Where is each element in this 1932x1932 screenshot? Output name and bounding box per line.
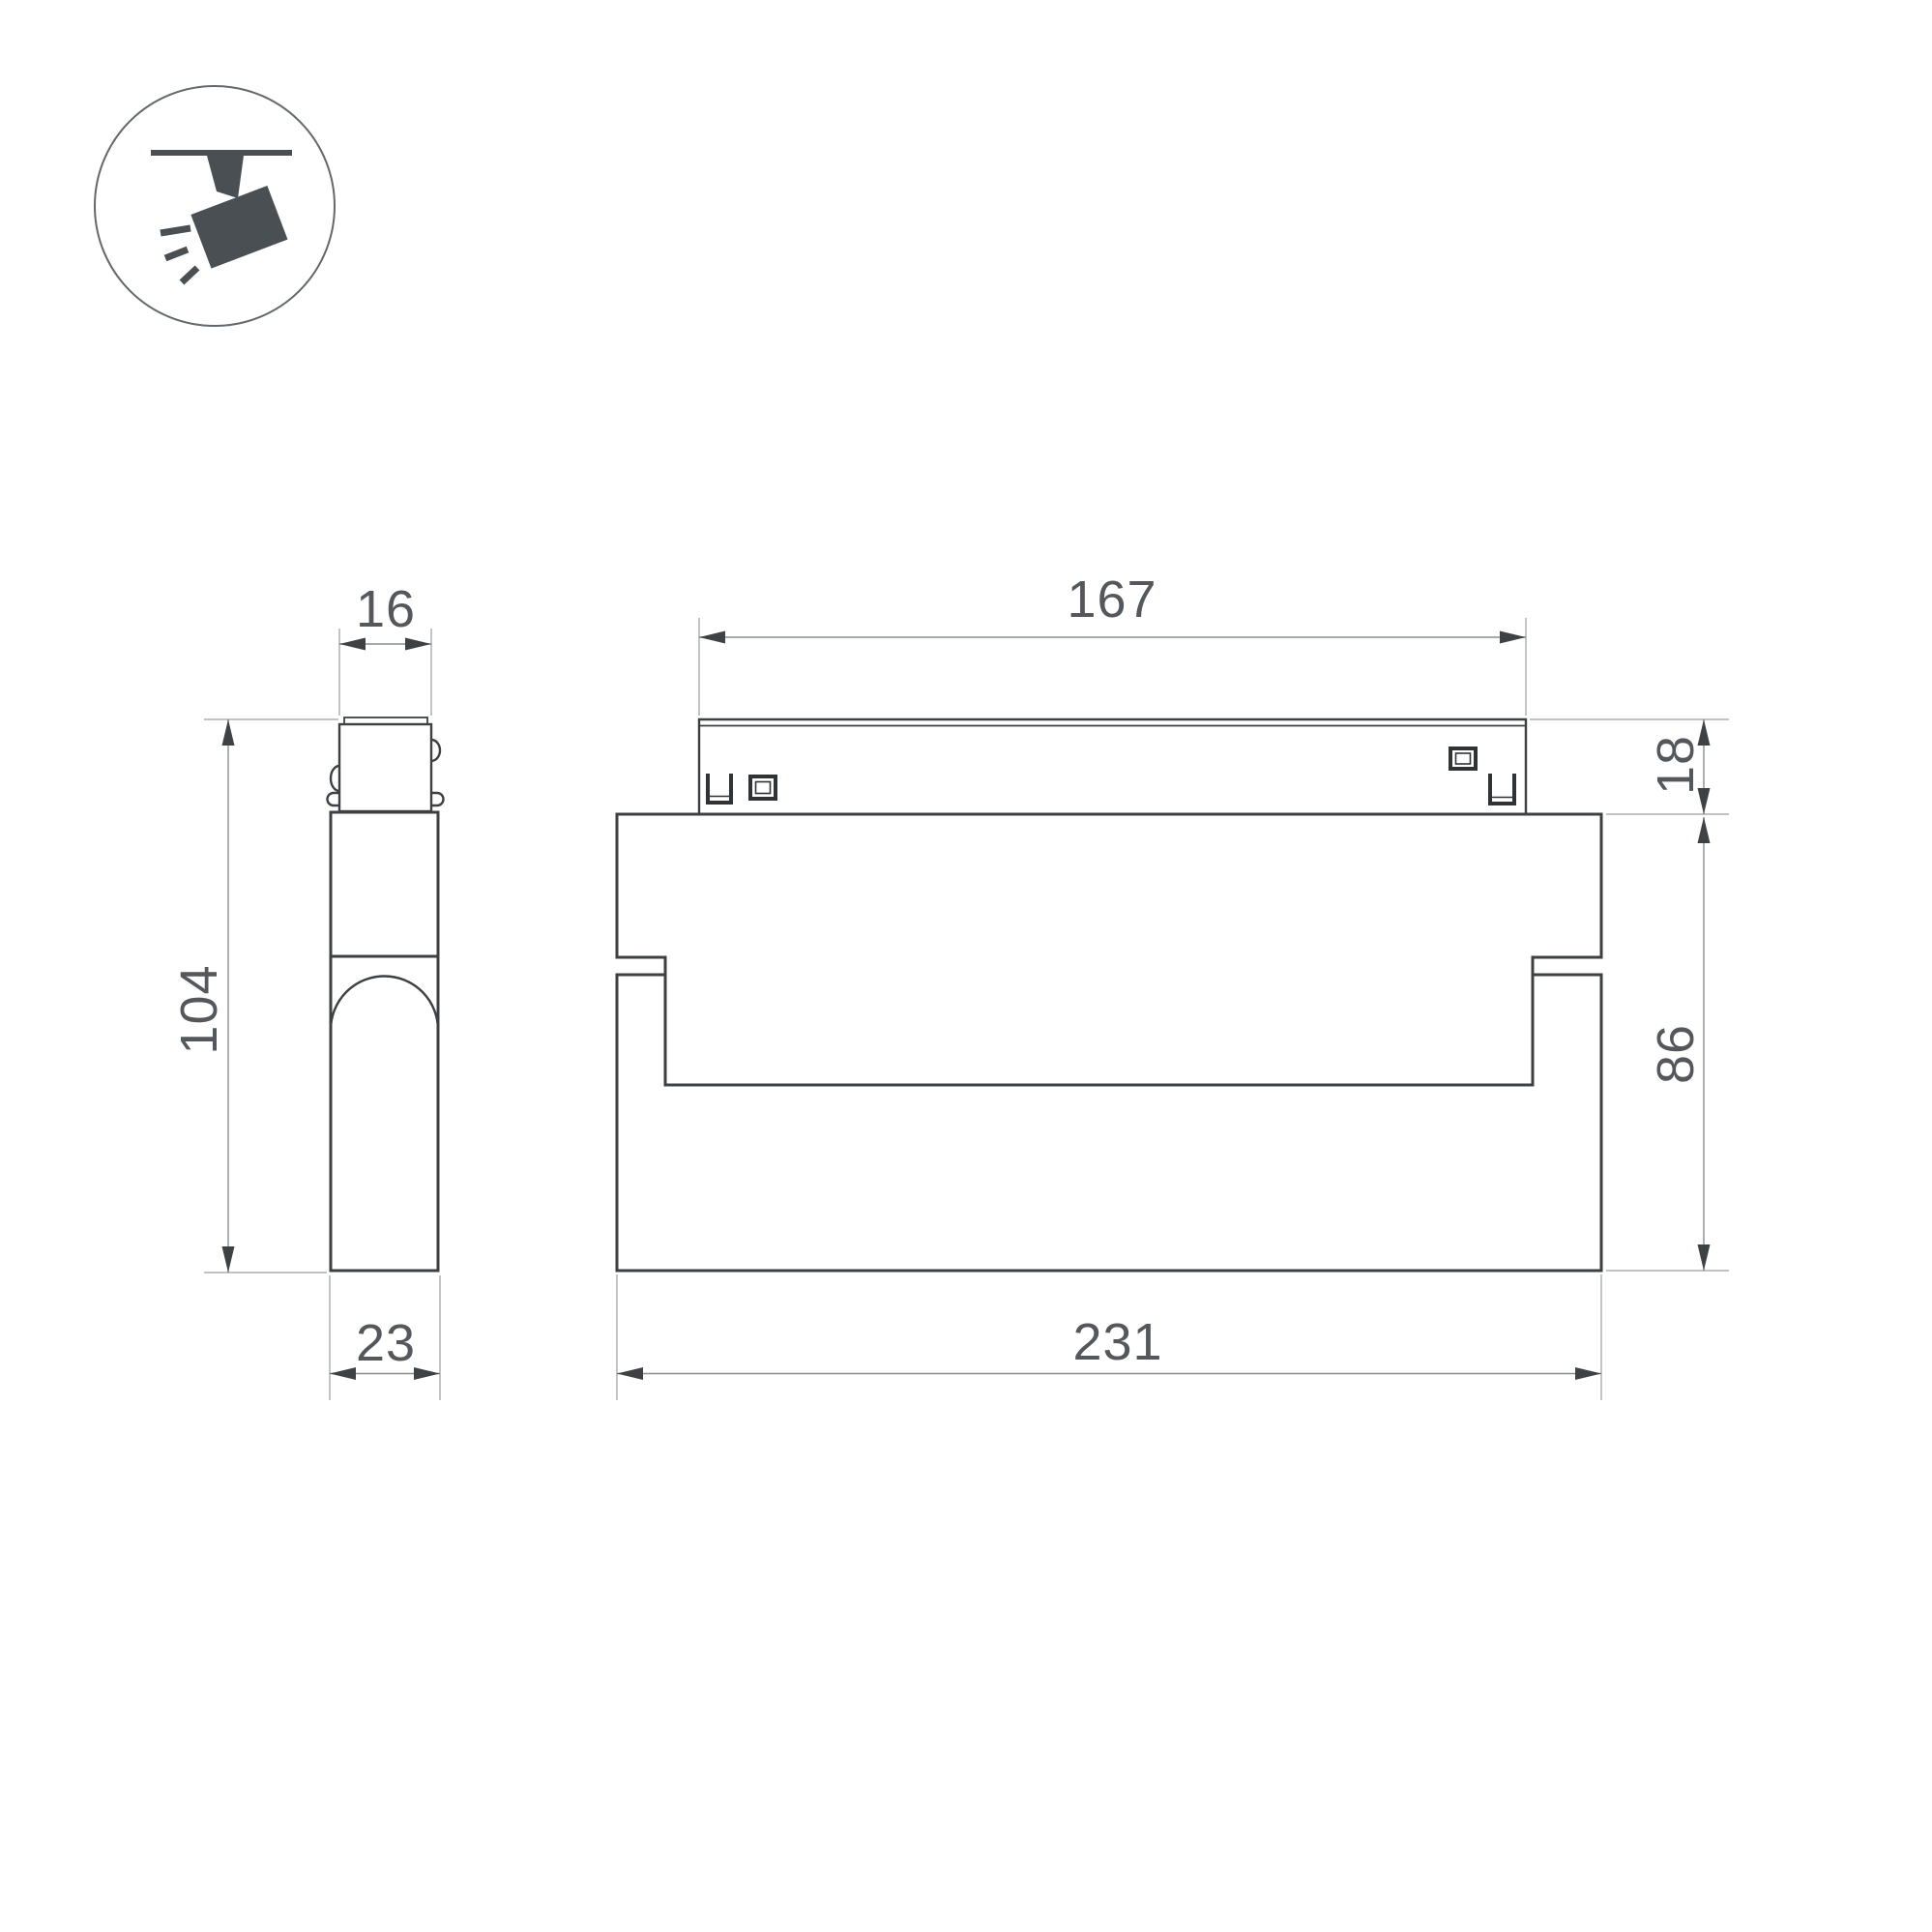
- front-lower-housing: [617, 975, 1601, 1271]
- dimension-track-height: 18: [1530, 719, 1729, 814]
- clip-u-right: [1490, 774, 1514, 804]
- dim-label-18: 18: [1647, 735, 1705, 795]
- clip-square-left: [750, 776, 776, 799]
- dimension-overall-width: 231: [617, 1274, 1601, 1400]
- drawing-canvas: 16 104 23 167 18: [0, 0, 1932, 1932]
- arrow-down-icon: [1698, 1244, 1711, 1271]
- arrow-right-icon: [405, 638, 431, 651]
- arrow-right-icon: [414, 1367, 440, 1380]
- arrow-right-icon: [1500, 631, 1526, 644]
- technical-drawing: 16 104 23 167 18: [0, 0, 1932, 1932]
- front-upper-housing: [617, 814, 1601, 1085]
- arrow-left-icon: [617, 1367, 643, 1380]
- arrow-up-icon: [222, 719, 235, 746]
- dim-label-167: 167: [1067, 571, 1156, 629]
- track-adapter: [339, 724, 431, 811]
- dimension-body-depth: 23: [330, 1275, 440, 1400]
- adapter-tab-left: [328, 793, 340, 805]
- dimension-track-length: 167: [699, 571, 1526, 716]
- side-view: [328, 717, 444, 1271]
- arrow-left-icon: [330, 1367, 356, 1380]
- dimension-overall-height: 104: [170, 719, 338, 1273]
- ceiling-line: [151, 150, 292, 156]
- side-body: [331, 812, 438, 1271]
- arrow-left-icon: [699, 631, 725, 644]
- dim-label-86: 86: [1647, 1024, 1705, 1084]
- dim-label-16: 16: [356, 580, 416, 638]
- dim-label-104: 104: [170, 964, 228, 1054]
- arrow-left-icon: [339, 638, 366, 651]
- adapter-bump-left: [331, 766, 339, 791]
- arrow-down-icon: [222, 1246, 235, 1273]
- arrow-up-icon: [1698, 817, 1711, 843]
- dimension-adapter-width: 16: [339, 580, 431, 716]
- dimension-body-height: 86: [1606, 817, 1729, 1271]
- adapter-tab-right: [431, 793, 444, 805]
- side-pivot-arch: [331, 977, 438, 1030]
- clip-u-left: [708, 774, 731, 803]
- front-view: [617, 719, 1601, 1271]
- arrow-right-icon: [1575, 1367, 1601, 1380]
- dim-label-231: 231: [1072, 1313, 1162, 1371]
- dim-label-23: 23: [356, 1314, 416, 1372]
- track-spotlight-icon: [95, 86, 335, 326]
- track-strip: [699, 719, 1526, 813]
- adapter-bump-right: [431, 740, 440, 761]
- clip-square-right: [1450, 748, 1476, 769]
